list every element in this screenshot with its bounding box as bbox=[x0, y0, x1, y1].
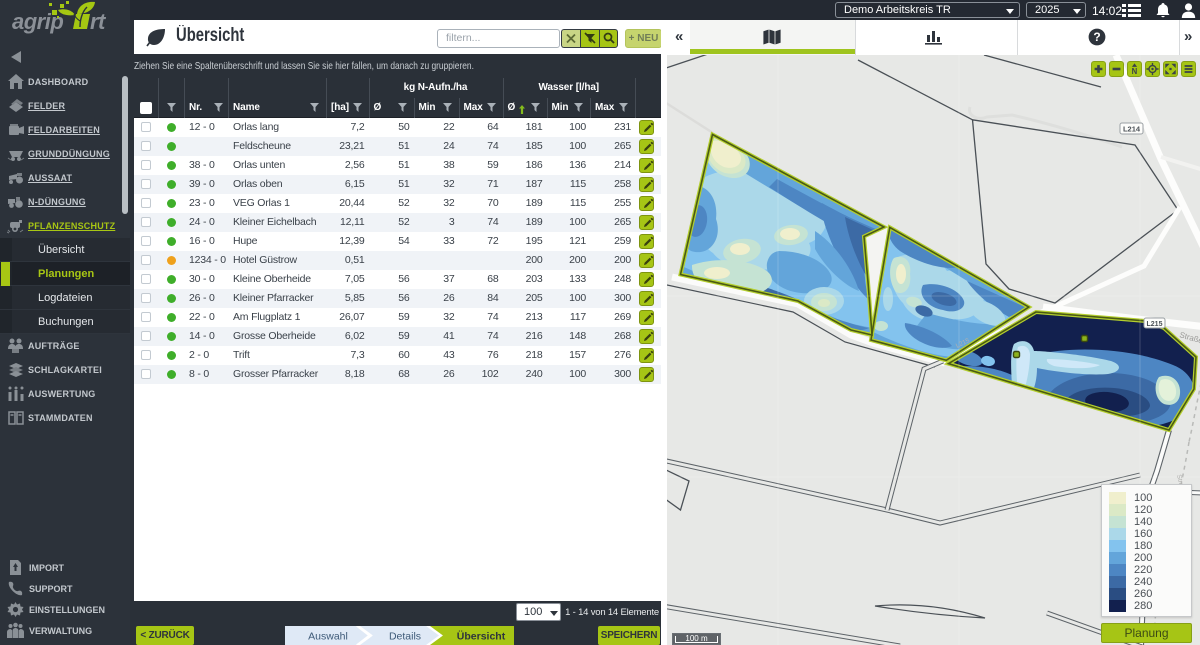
svg-text:Übersicht: Übersicht bbox=[457, 630, 506, 643]
svg-text:N: N bbox=[1132, 67, 1138, 76]
svg-text:?: ? bbox=[1093, 30, 1100, 44]
svg-text:rt: rt bbox=[90, 9, 107, 34]
svg-text:Details: Details bbox=[389, 631, 421, 643]
svg-text:Auswahl: Auswahl bbox=[308, 631, 348, 643]
svg-text:L214: L214 bbox=[1123, 125, 1141, 134]
svg-text:L215: L215 bbox=[1147, 321, 1163, 328]
